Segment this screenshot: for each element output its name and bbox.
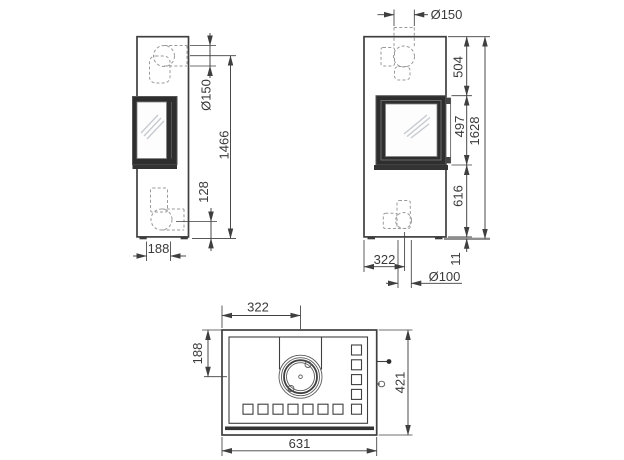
dim-label-side-flue-diameter: Ø150 [199,79,214,111]
dim-front-door-height: 497 [452,96,467,165]
handle-knob [387,359,392,364]
dim-label-top-width: 631 [289,436,311,451]
side-view: Ø150 1466 128 188 [133,33,237,261]
top-body-outline [222,330,377,435]
dim-label-top-collar-offset-y: 188 [190,343,205,365]
dim-side-outlet-offset: 188 [133,241,186,261]
dim-top-depth: 421 [379,330,413,435]
dim-front-lower-section: 616 [451,165,467,237]
dim-label-front-feet-height: 11 [448,252,463,266]
dim-label-front-total-height: 1628 [467,117,482,146]
dim-label-top-collar-offset-x: 322 [247,300,269,315]
front-view: Ø150 504 497 616 11 1628 [364,7,490,288]
stove-dimension-drawing: Ø150 1466 128 188 [0,0,624,460]
dim-top-width: 631 [222,436,377,456]
top-front-edge-band [225,427,374,431]
dim-label-side-rear-outlet-height: 128 [196,181,211,203]
dim-front-feet-height: 11 [448,239,467,266]
dim-label-front-door-height: 497 [452,116,467,138]
dim-label-front-flue-diameter: Ø150 [431,7,463,22]
technical-drawing-canvas: Ø150 1466 128 188 [0,0,624,460]
dim-label-front-outlet-offset: 322 [374,252,396,267]
front-door-hinge-strip [446,98,451,163]
front-foot-left [368,237,376,239]
front-door [374,96,451,170]
front-foot-right [435,237,443,239]
dim-side-flue-diameter: Ø150 [190,33,236,111]
dim-front-total-height: 1628 [467,37,485,239]
side-door-sill [133,165,178,170]
dim-label-front-top-section: 504 [451,56,466,78]
front-door-glass [386,104,438,157]
dim-label-side-outlet-offset: 188 [148,241,170,256]
dim-label-front-bottom-outlet-diameter: Ø100 [429,269,461,284]
dim-label-front-lower-section: 616 [451,185,466,207]
front-door-sill [374,165,448,170]
side-foot-front [140,237,147,239]
top-view: 322 188 421 631 [190,300,413,457]
side-door-glass [137,102,167,159]
dim-label-side-flue-center-height: 1466 [217,131,232,160]
dim-top-collar-offset-x: 322 [222,300,301,330]
side-foot-rear [181,237,188,239]
dim-front-flue-diameter: Ø150 [378,7,463,26]
dim-label-top-depth: 421 [393,372,408,394]
side-door [133,97,178,170]
dim-front-top-section: 504 [451,37,467,96]
top-door-handle [377,359,391,387]
